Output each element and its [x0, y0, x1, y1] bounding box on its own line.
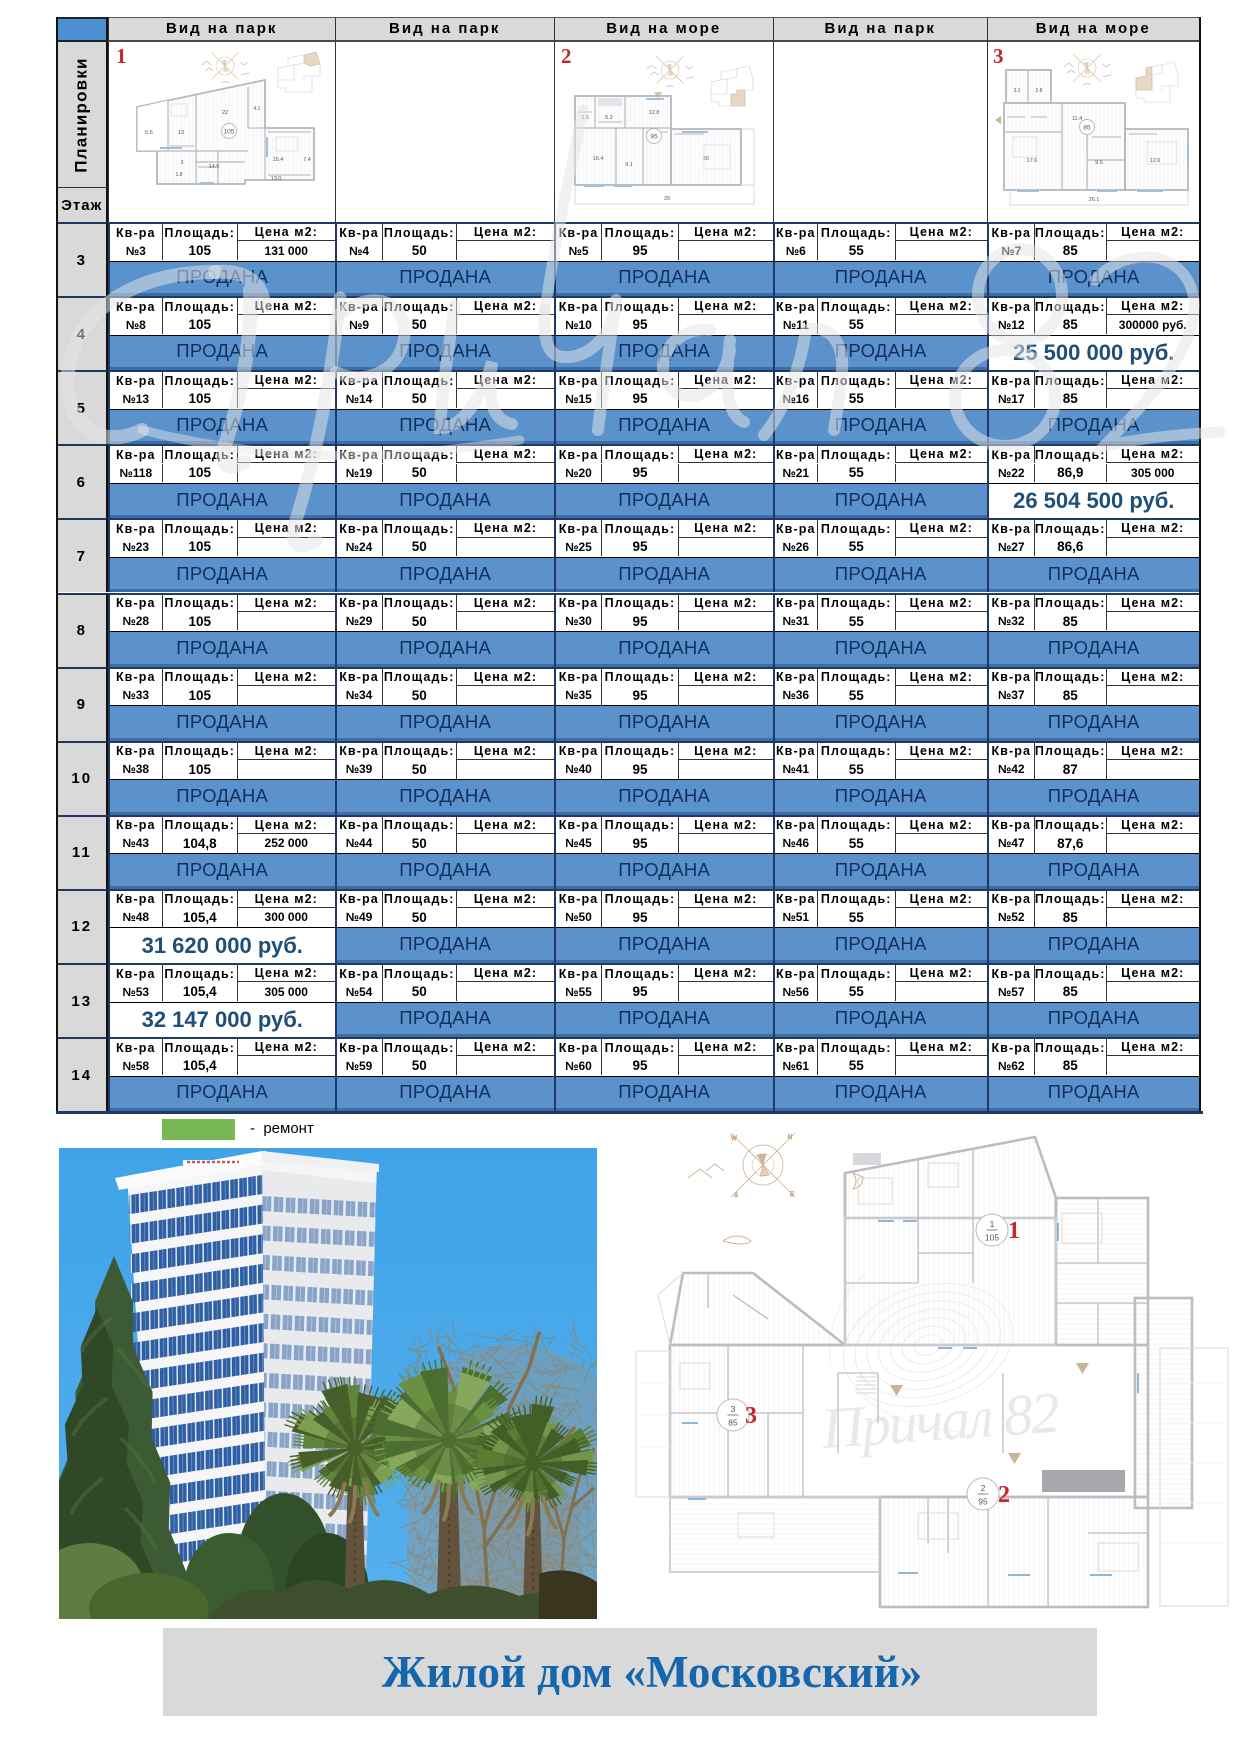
- svg-text:1.8: 1.8: [176, 172, 183, 178]
- svg-text:13: 13: [178, 130, 184, 136]
- svg-text:14.6: 14.6: [209, 164, 220, 170]
- svg-text:5.5: 5.5: [145, 130, 153, 136]
- svg-text:3: 3: [181, 160, 184, 166]
- svg-text:26.1: 26.1: [1089, 197, 1100, 203]
- svg-text:2.8: 2.8: [1036, 88, 1043, 94]
- svg-text:3.1: 3.1: [1014, 88, 1021, 94]
- svg-text:3: 3: [731, 1404, 736, 1414]
- svg-text:13.0: 13.0: [271, 176, 282, 182]
- svg-text:85: 85: [1083, 124, 1091, 131]
- svg-text:11.4: 11.4: [1072, 116, 1082, 122]
- svg-text:105: 105: [224, 128, 235, 135]
- svg-text:W: W: [731, 1136, 737, 1142]
- svg-text:95: 95: [978, 1497, 988, 1507]
- svg-text:95: 95: [650, 133, 658, 140]
- svg-text:12.6: 12.6: [1150, 158, 1161, 164]
- svg-text:2: 2: [981, 1483, 986, 1493]
- svg-text:5.2: 5.2: [605, 115, 613, 121]
- svg-text:2.5: 2.5: [581, 115, 589, 121]
- svg-text:9.1: 9.1: [625, 162, 633, 168]
- svg-text:105: 105: [985, 1233, 999, 1243]
- svg-text:12.8: 12.8: [649, 110, 660, 116]
- svg-text:E: E: [790, 1192, 794, 1198]
- svg-text:S: S: [734, 1193, 738, 1199]
- svg-text:7.4: 7.4: [303, 157, 311, 163]
- svg-text:9.5: 9.5: [1095, 160, 1103, 166]
- svg-text:1: 1: [990, 1219, 995, 1229]
- svg-text:22: 22: [222, 110, 228, 116]
- svg-text:16.4: 16.4: [593, 156, 604, 162]
- svg-text:4.1: 4.1: [254, 106, 261, 112]
- svg-text:85: 85: [728, 1418, 738, 1428]
- svg-text:15.4: 15.4: [273, 157, 284, 163]
- svg-text:N: N: [788, 1135, 792, 1141]
- svg-text:17.6: 17.6: [1027, 158, 1038, 164]
- svg-text:29: 29: [664, 196, 670, 202]
